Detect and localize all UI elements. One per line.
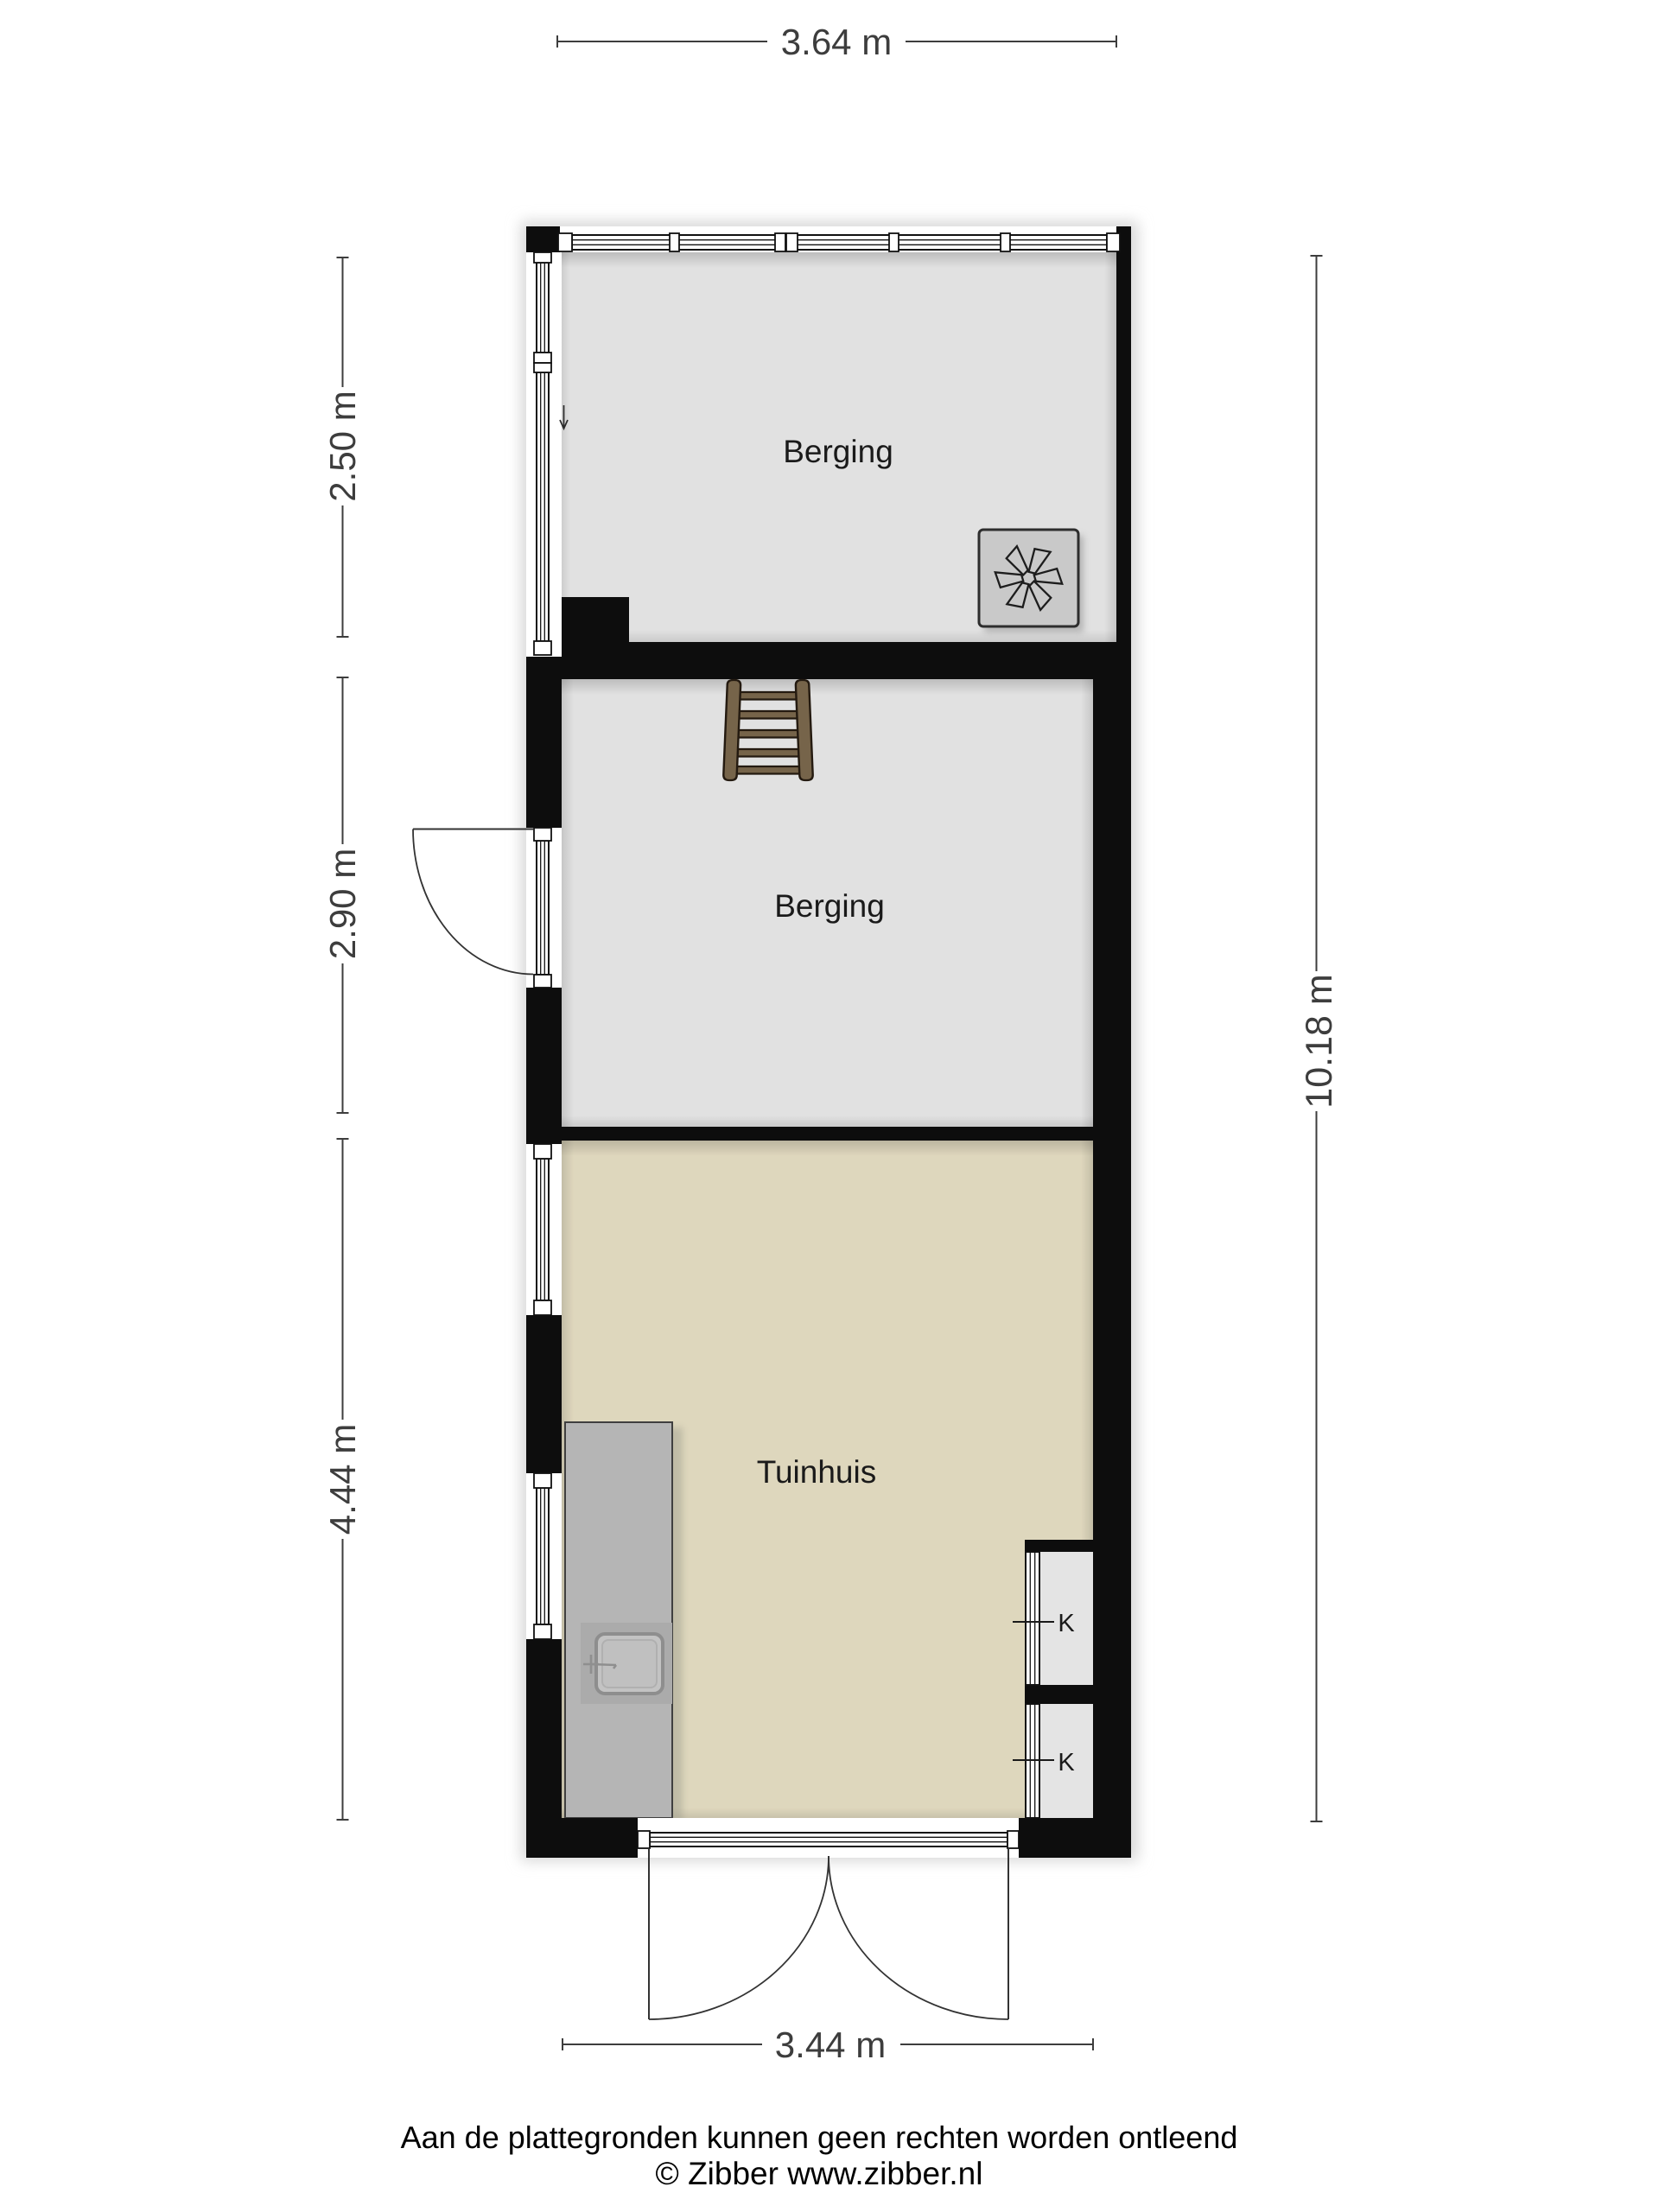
svg-text:10.18 m: 10.18 m [1299,974,1340,1108]
svg-text:K: K [1058,1610,1075,1637]
svg-text:4.44 m: 4.44 m [322,1424,363,1535]
svg-text:Tuinhuis: Tuinhuis [757,1454,876,1490]
svg-text:Berging: Berging [783,434,893,469]
svg-text:Aan de plattegronden kunnen ge: Aan de plattegronden kunnen geen rechten… [401,2120,1238,2155]
svg-text:© Zibber www.zibber.nl: © Zibber www.zibber.nl [656,2156,983,2191]
svg-text:Berging: Berging [774,888,885,924]
svg-text:K: K [1058,1749,1075,1777]
svg-text:2.90 m: 2.90 m [322,849,363,959]
svg-text:3.64 m: 3.64 m [781,22,892,62]
svg-text:3.44 m: 3.44 m [775,2024,886,2065]
svg-text:2.50 m: 2.50 m [322,391,363,501]
